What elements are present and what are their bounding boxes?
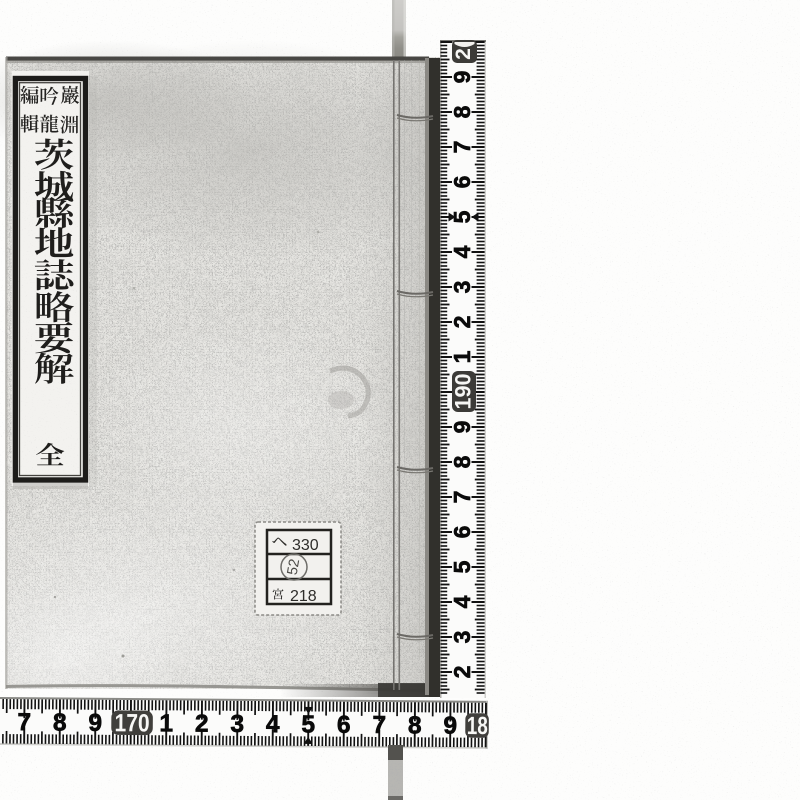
svg-text:8: 8 (449, 105, 475, 118)
svg-text:6: 6 (337, 712, 351, 739)
svg-text:170: 170 (115, 709, 150, 737)
svg-text:9: 9 (449, 71, 475, 84)
svg-text:6: 6 (449, 176, 475, 189)
svg-text:9: 9 (449, 421, 475, 434)
svg-text:7: 7 (372, 712, 386, 739)
svg-text:9: 9 (88, 710, 102, 737)
svg-text:2: 2 (195, 711, 209, 738)
svg-text:8: 8 (53, 709, 67, 736)
svg-text:7: 7 (449, 141, 475, 154)
svg-text:6: 6 (449, 526, 475, 539)
svg-text:190: 190 (451, 374, 476, 410)
svg-text:7: 7 (17, 709, 31, 736)
svg-text:218: 218 (290, 588, 317, 605)
svg-text:4: 4 (449, 245, 475, 258)
svg-text:3: 3 (449, 631, 475, 644)
svg-text:1: 1 (159, 710, 173, 737)
svg-text:4: 4 (449, 595, 475, 608)
svg-text:2: 2 (449, 316, 475, 329)
svg-text:8: 8 (449, 455, 475, 468)
svg-text:5: 5 (449, 560, 475, 573)
svg-text:330: 330 (292, 537, 319, 554)
svg-text:8: 8 (408, 712, 422, 739)
svg-text:7: 7 (449, 491, 475, 504)
svg-text:3: 3 (230, 711, 244, 738)
svg-text:4: 4 (266, 711, 280, 738)
svg-text:2: 2 (449, 666, 475, 679)
svg-text:52: 52 (285, 558, 304, 577)
svg-text:1: 1 (449, 350, 475, 363)
svg-text:2: 2 (452, 48, 475, 60)
svg-text:5: 5 (301, 711, 315, 738)
svg-text:3: 3 (449, 281, 475, 294)
svg-text:9: 9 (443, 712, 457, 739)
svg-text:18: 18 (467, 712, 488, 740)
